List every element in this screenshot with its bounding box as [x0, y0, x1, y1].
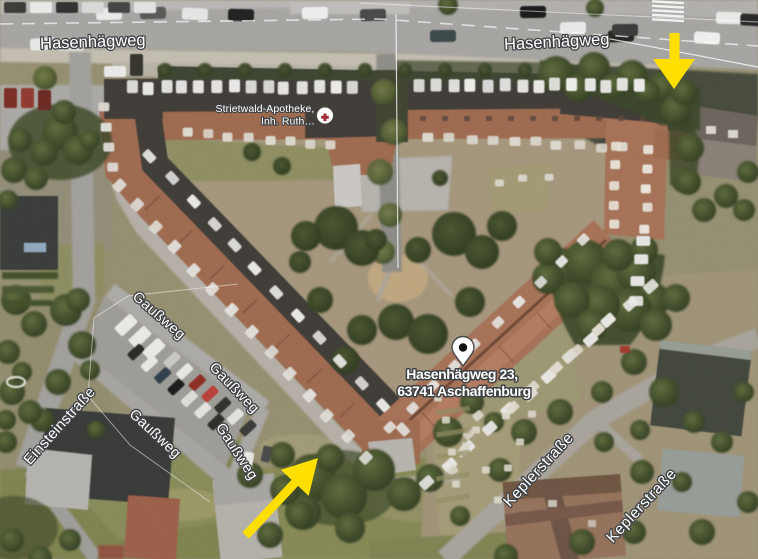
svg-text:63741 Aschaffenburg: 63741 Aschaffenburg: [397, 383, 531, 399]
svg-text:Inh. Ruth…: Inh. Ruth…: [261, 116, 315, 128]
svg-text:Hasenhägweg 23,: Hasenhägweg 23,: [406, 366, 518, 382]
svg-text:Hasenhägweg: Hasenhägweg: [40, 31, 146, 53]
svg-text:Strietwald-Apotheke,: Strietwald-Apotheke,: [216, 103, 315, 115]
